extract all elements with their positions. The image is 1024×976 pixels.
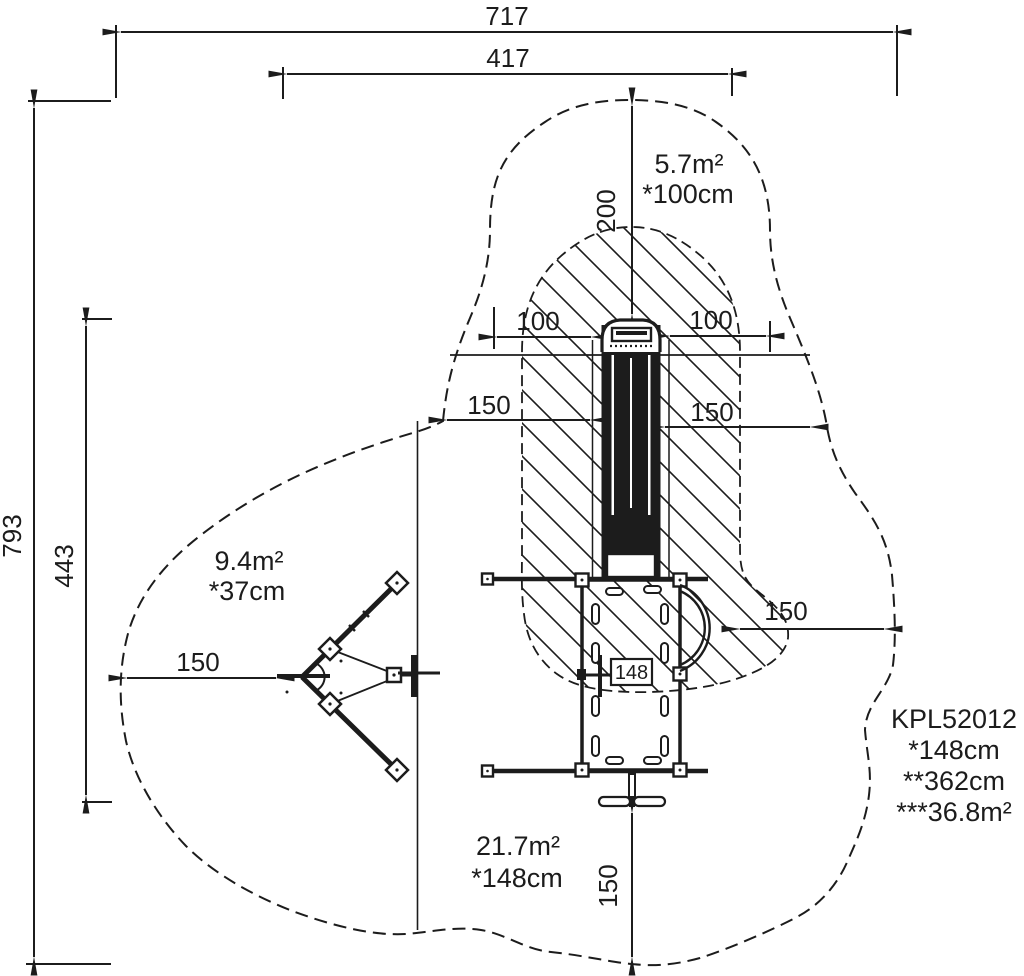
dim-inner-height (82, 319, 112, 802)
slide-tower (602, 320, 661, 579)
zone-top-area: 5.7m² (654, 149, 723, 179)
label-runout: 200 (591, 189, 621, 232)
label-clear-left-mid: 150 (467, 390, 510, 420)
installation-plan: 717 417 793 443 200 100 100 150 150 150 … (0, 0, 1024, 976)
label-slide-half-right: 100 (689, 305, 732, 335)
label-total-height: 793 (0, 514, 27, 557)
label-clear-right-low: 150 (764, 596, 807, 626)
platform-size-tag: 148 (611, 659, 652, 685)
label-slide-half-left: 100 (516, 306, 559, 336)
platform-size-label: 148 (615, 662, 648, 684)
dim-total-height (26, 101, 111, 964)
label-clear-right-mid: 150 (690, 397, 733, 427)
label-inner-height: 443 (49, 544, 79, 587)
zone-top-height: *100cm (642, 179, 734, 209)
product-info: KPL52012 *148cm **362cm ***36.8m² (891, 704, 1017, 827)
label-clear-bottom: 150 (593, 864, 623, 907)
product-spec-3: ***36.8m² (896, 797, 1012, 827)
label-total-width: 717 (485, 1, 528, 31)
plan-drawing-svg: 717 417 793 443 200 100 100 150 150 150 … (0, 0, 1024, 976)
label-inner-width: 417 (486, 43, 529, 73)
zone-left-area: 9.4m² (214, 546, 283, 576)
climbing-net (277, 572, 440, 781)
zone-bottom-height: *148cm (471, 863, 563, 893)
product-spec-1: *148cm (908, 735, 1000, 765)
net-connectors (319, 572, 408, 781)
zone-left-height: *37cm (209, 576, 286, 606)
product-code: KPL52012 (891, 704, 1017, 734)
dimension-lines (26, 25, 897, 964)
balance-element (599, 774, 665, 807)
label-clear-left: 150 (176, 647, 219, 677)
product-spec-2: **362cm (903, 766, 1005, 796)
zone-bottom-area: 21.7m² (476, 831, 560, 861)
